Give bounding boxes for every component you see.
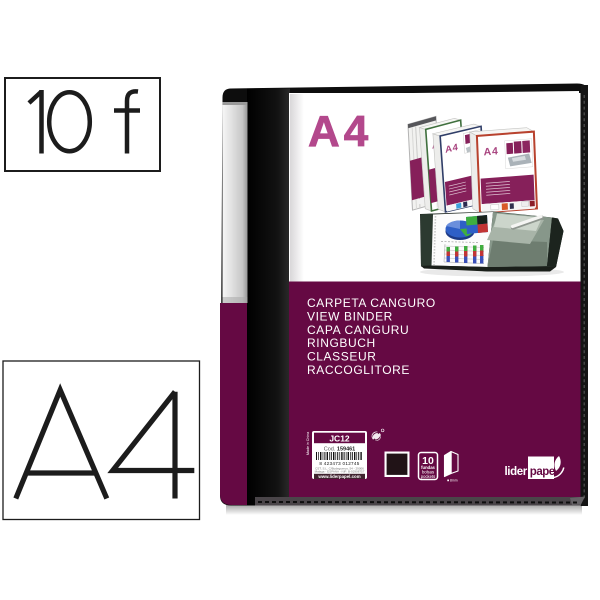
svg-text:pockets: pockets bbox=[421, 474, 435, 479]
svg-text:Cod. 159461: Cod. 159461 bbox=[324, 446, 356, 452]
svg-text:lider: lider bbox=[505, 466, 528, 478]
svg-text:Made in China: Made in China bbox=[306, 432, 310, 455]
svg-text:CAPA CANGURU: CAPA CANGURU bbox=[307, 323, 409, 337]
svg-text:RACCOGLITORE: RACCOGLITORE bbox=[307, 363, 410, 377]
svg-text:www.liderpapel.com: www.liderpapel.com bbox=[317, 474, 360, 479]
svg-text:CARPETA CANGURO: CARPETA CANGURO bbox=[307, 296, 436, 310]
svg-text:CLASSEUR: CLASSEUR bbox=[307, 350, 377, 364]
svg-text:JC12: JC12 bbox=[329, 433, 350, 443]
svg-text:A4: A4 bbox=[308, 107, 372, 156]
svg-text:pape: pape bbox=[530, 466, 555, 478]
svg-text:A4: A4 bbox=[483, 145, 498, 158]
svg-text:RINGBUCH: RINGBUCH bbox=[307, 336, 376, 350]
svg-text:VIEW BINDER: VIEW BINDER bbox=[307, 309, 393, 323]
svg-text:8 423473 012745: 8 423473 012745 bbox=[319, 461, 359, 466]
svg-text:■ 8mm: ■ 8mm bbox=[447, 479, 458, 483]
